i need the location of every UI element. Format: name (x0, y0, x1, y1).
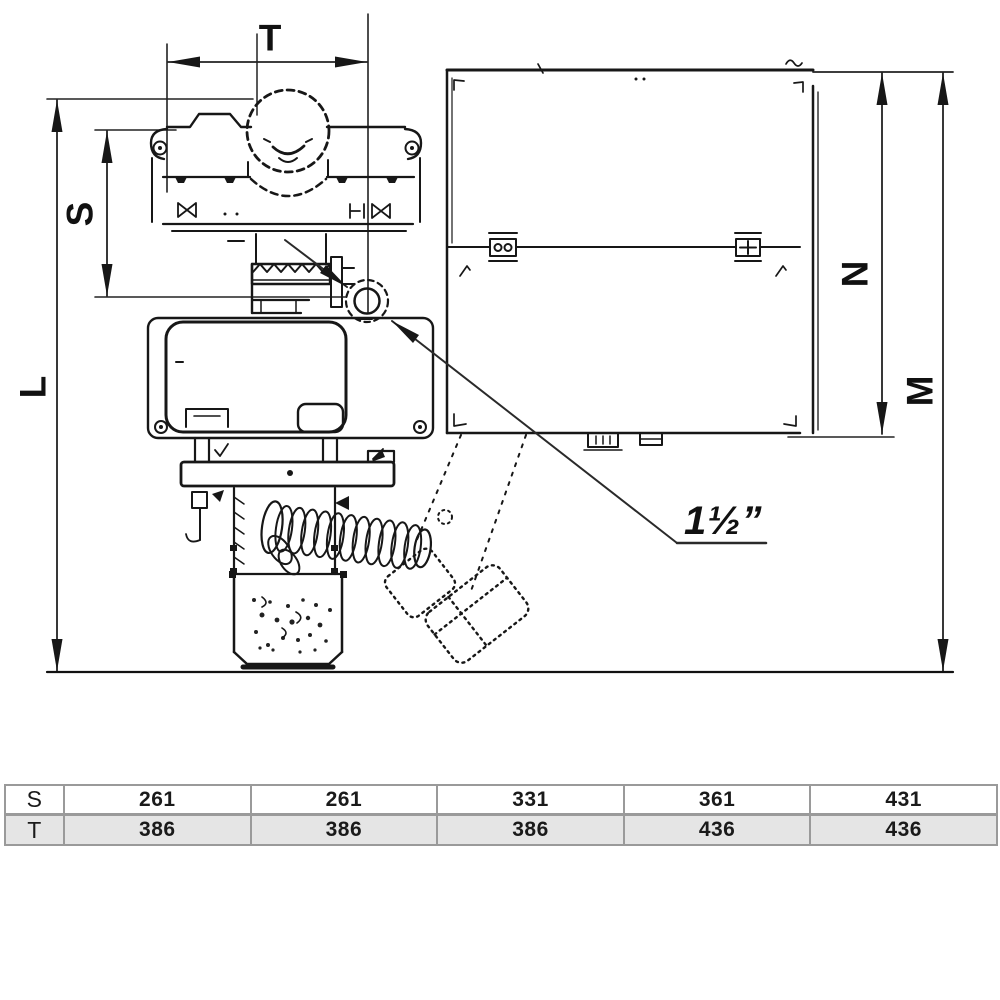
row-label-s: S (6, 786, 63, 813)
tank-drain-phantom (416, 435, 526, 591)
burner-unit (148, 90, 532, 667)
table-row-s: S 261 261 331 361 431 (6, 786, 996, 813)
motor-box (148, 318, 433, 438)
spec-table: S 261 261 331 361 431 T 386 386 386 436 … (4, 784, 998, 846)
technical-drawing: L S T N M (0, 0, 1000, 760)
t-value-2: 386 (250, 816, 437, 844)
t-value-3: 386 (436, 816, 623, 844)
plate-fitting-symbols (178, 203, 390, 218)
s-value-5: 431 (809, 786, 996, 813)
dim-label-L: L (13, 376, 54, 399)
row-label-t: T (6, 816, 63, 844)
clamp-left (489, 233, 517, 261)
callout-pipe-size-label: 1½” (684, 499, 763, 543)
pump-columns (186, 488, 349, 574)
s-value-3: 331 (436, 786, 623, 813)
dim-label-S: S (60, 202, 101, 227)
t-value-4: 436 (623, 816, 810, 844)
connection-nipple (252, 234, 354, 313)
t-value-5: 436 (809, 816, 996, 844)
flex-hose (259, 500, 435, 578)
dim-label-N: N (835, 261, 876, 288)
clamp-right (735, 233, 761, 261)
s-value-2: 261 (250, 786, 437, 813)
elbow-fitting-phantom (382, 545, 533, 666)
dimension-M (938, 73, 949, 671)
flange-plate (181, 438, 394, 486)
tank-bottom-brackets (584, 433, 662, 450)
mounting-plate (151, 114, 421, 241)
dim-label-T: T (259, 18, 282, 59)
dimension-L (47, 99, 253, 671)
technical-drawing-page: L S T N M (0, 0, 1000, 1000)
pump-head-phantom (247, 90, 329, 196)
filter-canister (229, 571, 347, 667)
s-value-1: 261 (63, 786, 250, 813)
callout-pipe-size (285, 240, 766, 543)
dim-label-M: M (900, 376, 941, 407)
pipe-connection-circle (346, 280, 388, 322)
s-value-4: 361 (623, 786, 810, 813)
t-value-1: 386 (63, 816, 250, 844)
table-row-t: T 386 386 386 436 436 (6, 813, 996, 844)
